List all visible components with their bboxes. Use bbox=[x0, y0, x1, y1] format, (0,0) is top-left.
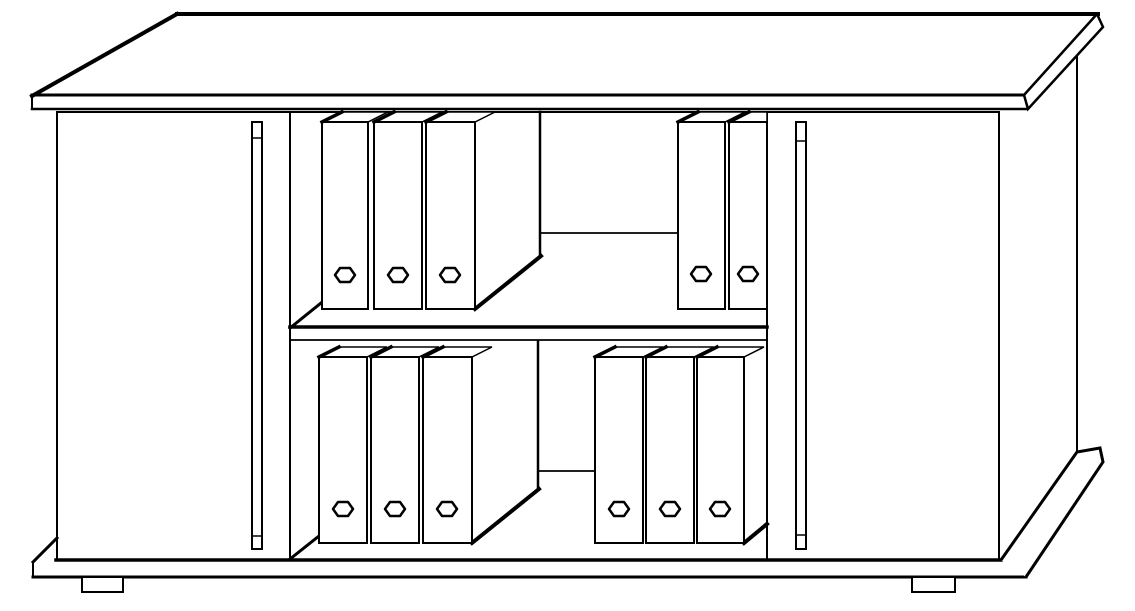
binder-grip-hole-lower-right-3 bbox=[710, 502, 730, 516]
upper-binder-block-side-bottom-diagonal bbox=[475, 256, 541, 309]
right-door-handle bbox=[796, 122, 806, 549]
binder-grip-hole-lower-right-2 bbox=[660, 502, 680, 516]
plinth-right-end bbox=[1001, 448, 1103, 577]
tabletop-left-edge bbox=[32, 14, 177, 96]
binder-grip-hole-upper-right-1 bbox=[691, 267, 711, 281]
binder-grip-hole-lower-left-3 bbox=[437, 502, 457, 516]
lower-right-binder-side-bottom-diagonal bbox=[744, 524, 767, 543]
binder-grip-hole-lower-left-2 bbox=[385, 502, 405, 516]
binder-grip-hole-upper-left-3 bbox=[440, 268, 460, 282]
binder-grip-hole-lower-right-1 bbox=[609, 502, 629, 516]
lower-floor-left-corner-diagonal bbox=[290, 536, 319, 559]
lower-binder-block-side-bottom-diagonal bbox=[472, 489, 539, 543]
binder-grip-hole-lower-left-1 bbox=[333, 502, 353, 516]
sideboard-svg bbox=[0, 0, 1135, 611]
binder-grip-hole-upper-left-2 bbox=[388, 268, 408, 282]
upper-shelf-left-corner-diagonal bbox=[290, 303, 321, 328]
tabletop-right-end-face bbox=[1024, 14, 1103, 109]
right-foot bbox=[912, 577, 955, 592]
left-foot bbox=[82, 577, 123, 592]
plinth-left-end-diagonal bbox=[33, 538, 57, 562]
sideboard-line-drawing bbox=[0, 0, 1135, 611]
left-door-handle bbox=[252, 122, 262, 549]
binder-grip-hole-upper-right-2 bbox=[738, 267, 758, 281]
binder-grip-hole-upper-left-1 bbox=[335, 268, 355, 282]
